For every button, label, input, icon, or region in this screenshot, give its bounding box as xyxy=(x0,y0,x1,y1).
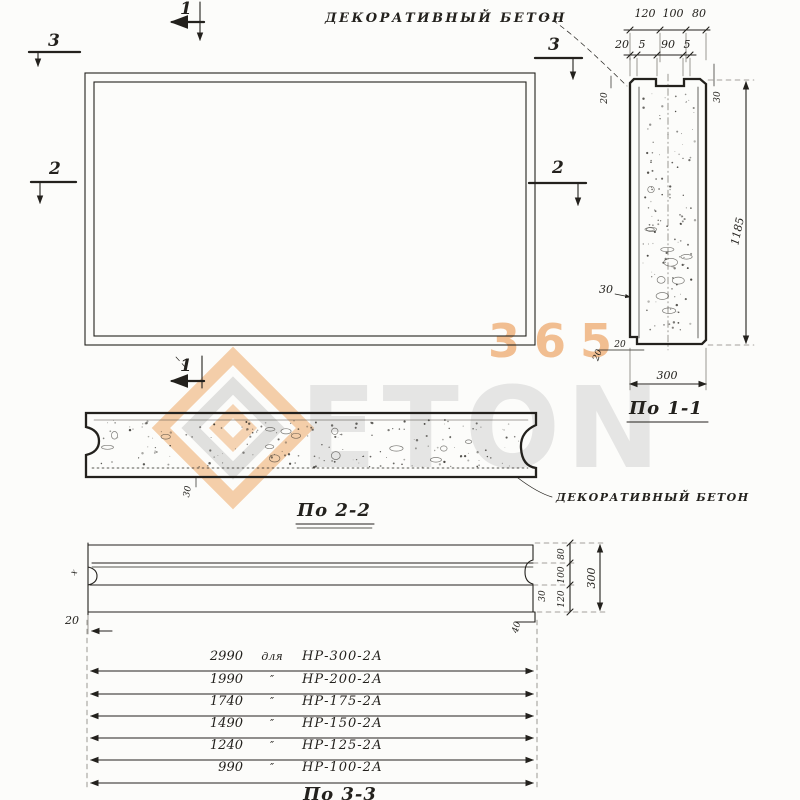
length-value: 990 xyxy=(218,760,243,775)
section-mark-1-top: 1 xyxy=(172,0,204,40)
dim-300: 300 xyxy=(585,568,598,589)
dim-20a: 20 xyxy=(614,38,629,51)
dim-5a: 5 xyxy=(639,38,646,51)
bottom-note-decorative-concrete: Декоративный бетон xyxy=(555,489,750,504)
table-row: 1240 ″ НР-125-2А xyxy=(91,738,533,760)
dim-300: 300 xyxy=(657,369,678,382)
beton365-logo-icon xyxy=(161,356,305,500)
section-3-3-view: х 80 100 120 300 30 40 20 xyxy=(64,540,606,635)
front-view-inner-line xyxy=(94,82,526,336)
for-label: для xyxy=(261,650,282,663)
svg-text:3: 3 xyxy=(48,31,60,51)
ditto-mark: ″ xyxy=(270,673,275,686)
table-row: 1490 ″ НР-150-2А xyxy=(91,716,533,738)
svg-text:1: 1 xyxy=(180,356,192,376)
dim-30-mid: 30 xyxy=(599,283,613,296)
watermark-word: ETON xyxy=(300,364,666,494)
ditto-mark: ″ xyxy=(270,695,275,708)
length-value: 1240 xyxy=(210,738,243,753)
dim-80: 80 xyxy=(692,7,706,20)
front-view-outline xyxy=(85,73,535,345)
dim-100: 100 xyxy=(663,7,684,20)
table-row: 2990 для НР-300-2А xyxy=(91,649,533,671)
dim-100: 100 xyxy=(557,566,567,583)
dim-120: 120 xyxy=(635,7,656,20)
dim-30: 30 xyxy=(538,590,548,602)
length-value: 1490 xyxy=(210,716,243,731)
dim-120: 120 xyxy=(557,590,567,607)
table-row: 1990 ″ НР-200-2А xyxy=(91,672,533,694)
svg-text:2: 2 xyxy=(551,158,564,178)
ditto-mark: ″ xyxy=(270,739,275,752)
dim-90: 90 xyxy=(661,38,675,51)
front-view xyxy=(85,73,535,345)
table-row: 990 ″ НР-100-2А xyxy=(91,760,533,783)
watermark-digits: 365 xyxy=(488,314,626,368)
length-value: 1740 xyxy=(210,694,243,709)
dim-20-b2: 20 xyxy=(613,340,626,350)
dim-80: 80 xyxy=(557,548,567,560)
ditto-mark: ″ xyxy=(270,717,275,730)
svg-text:1: 1 xyxy=(180,0,192,19)
section-mark-2-right: 2 xyxy=(529,158,586,205)
ditto-mark: ″ xyxy=(270,761,275,774)
engineering-drawing: 365 ETON Декоративный бетон 3 1 2 3 2 1 xyxy=(0,0,800,800)
section-mark-2-left: 2 xyxy=(31,159,76,203)
svg-text:2: 2 xyxy=(48,159,61,179)
section-2-2-label: По 2-2 xyxy=(296,500,371,521)
length-value: 2990 xyxy=(209,649,243,664)
top-note-decorative-concrete: Декоративный бетон xyxy=(324,9,567,26)
section-mark-3-right: 3 xyxy=(535,35,582,79)
dim-5b: 5 xyxy=(684,38,691,51)
product-mark: НР-300-2А xyxy=(301,649,383,664)
product-mark: НР-200-2А xyxy=(301,672,383,687)
dim-20: 20 xyxy=(64,614,79,627)
svg-text:3: 3 xyxy=(548,35,560,55)
product-mark: НР-150-2А xyxy=(301,716,383,731)
dim-30: 30 xyxy=(182,485,194,498)
dim-30-right: 30 xyxy=(713,91,723,103)
dim-1185: 1185 xyxy=(728,216,747,246)
product-mark: НР-175-2А xyxy=(301,694,383,709)
groove-bump xyxy=(88,567,97,585)
section-mark-3-left: 3 xyxy=(29,31,80,66)
dim-40: 40 xyxy=(510,620,523,635)
table-row: 1740 ″ НР-175-2А xyxy=(91,694,533,716)
product-mark: НР-125-2А xyxy=(301,738,383,753)
section-3-3-label: По 3-3 xyxy=(302,784,377,800)
dim-20-left: 20 xyxy=(600,92,610,105)
concrete-texture xyxy=(642,93,696,330)
product-mark: НР-100-2А xyxy=(301,760,383,775)
right-profile xyxy=(515,545,535,622)
watermark: 365 ETON xyxy=(161,314,666,500)
length-table: 2990 для НР-300-2А 1990 ″ НР-200-2А 1740… xyxy=(87,620,537,800)
radius-note: х xyxy=(69,568,80,578)
section-1-1-label: По 1-1 xyxy=(628,398,703,419)
length-value: 1990 xyxy=(210,672,243,687)
